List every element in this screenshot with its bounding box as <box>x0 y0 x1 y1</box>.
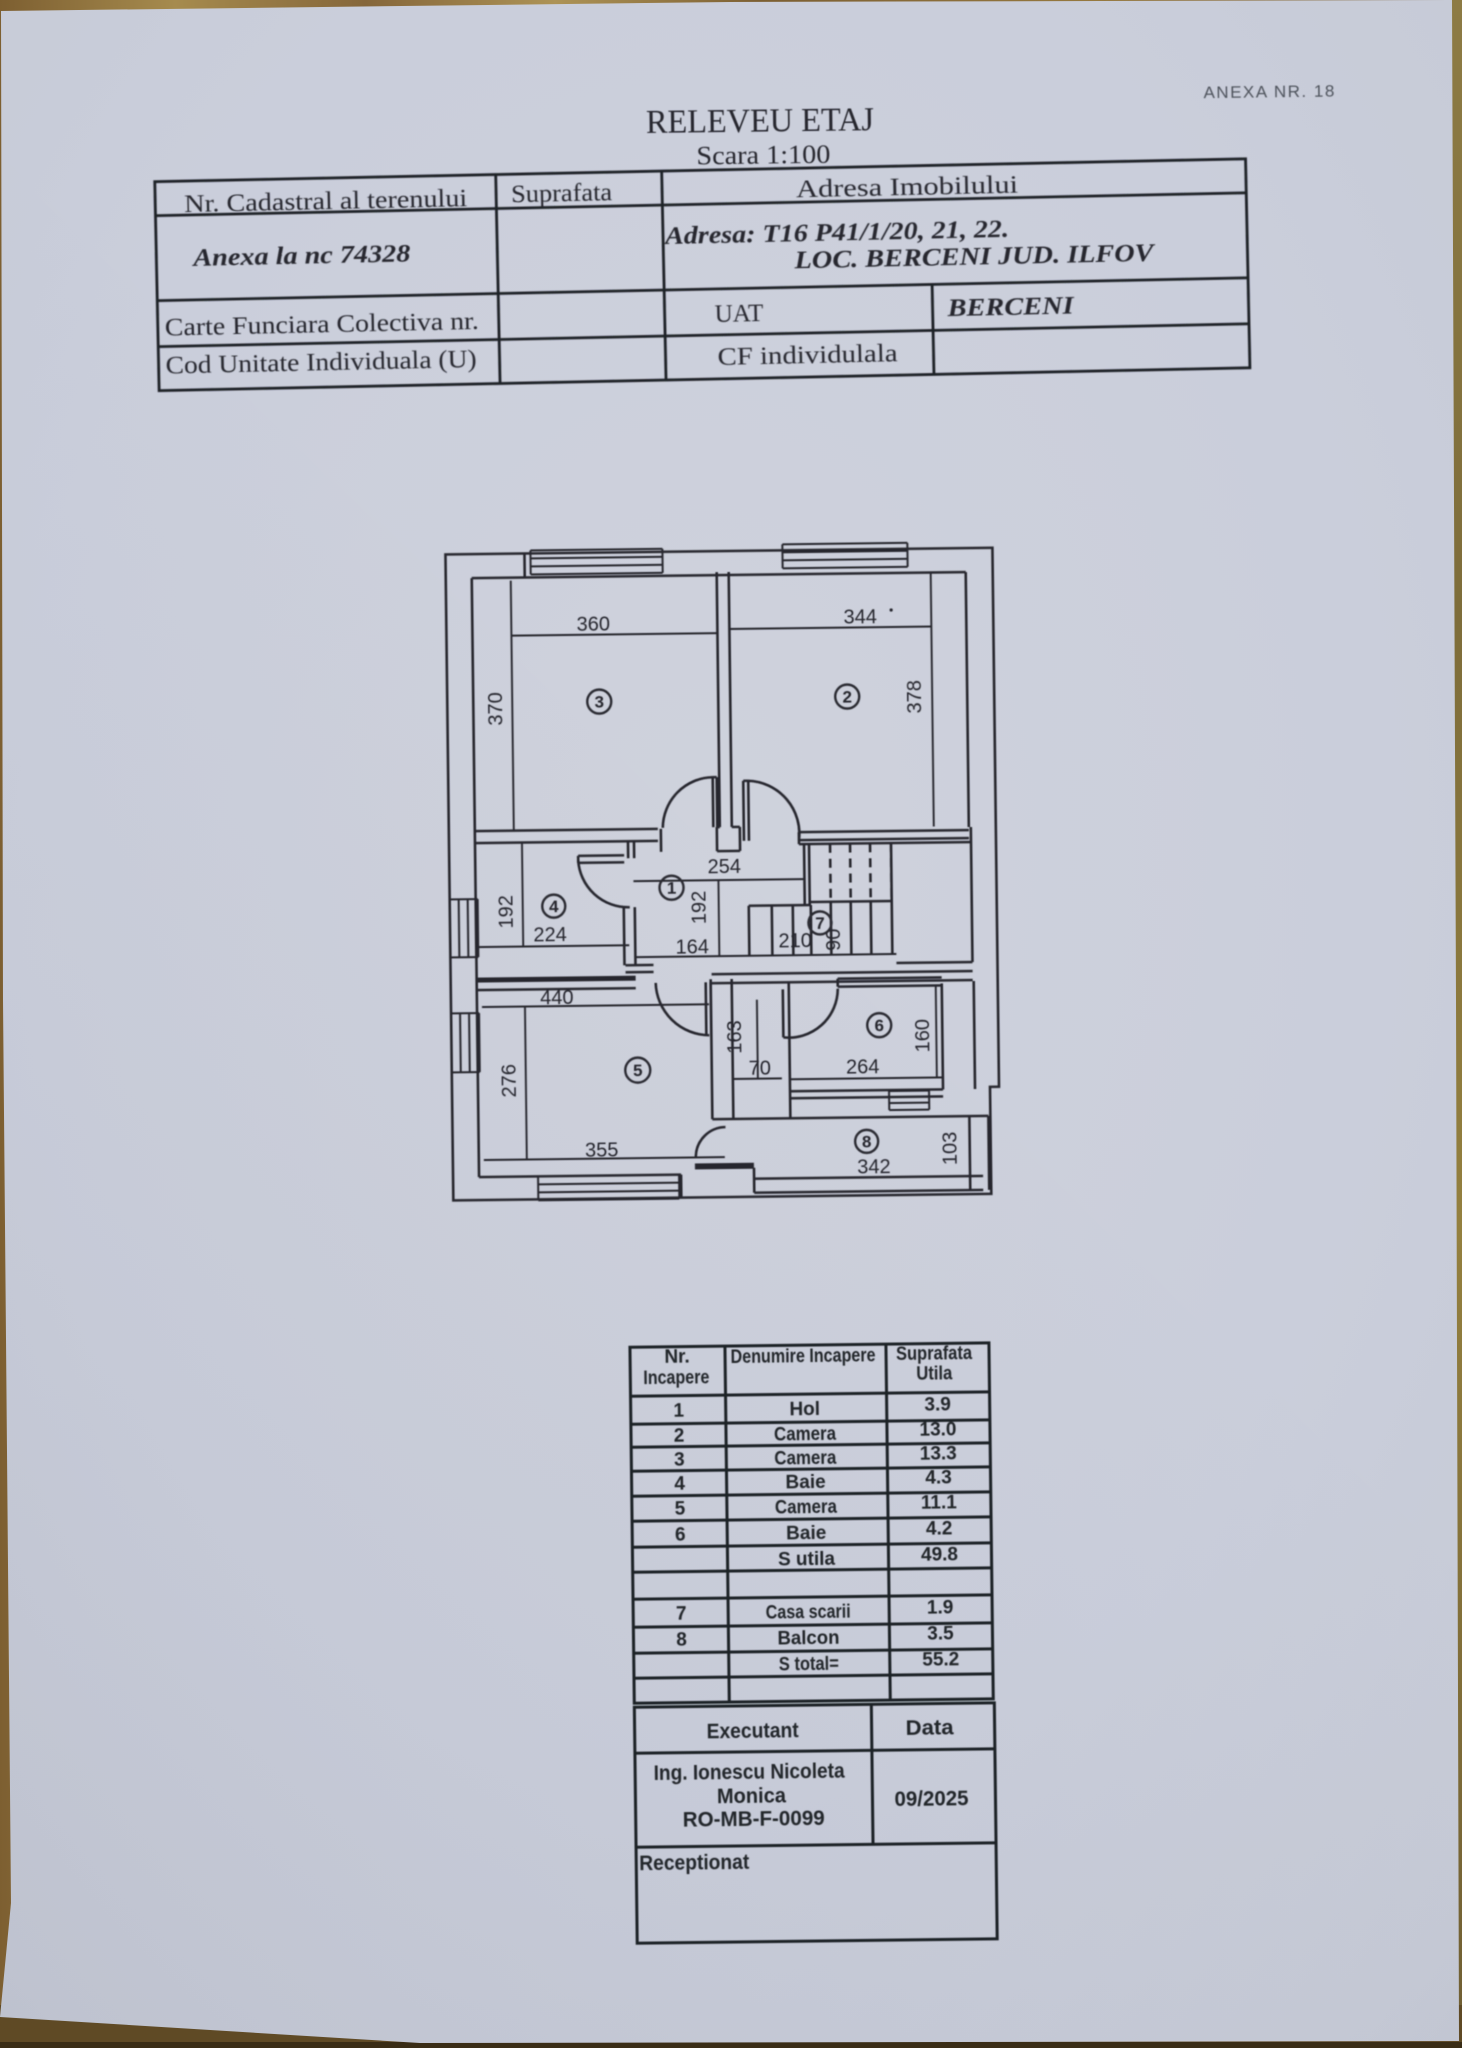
svg-text:09/2025: 09/2025 <box>894 1787 969 1811</box>
svg-text:Monica: Monica <box>717 1784 787 1808</box>
svg-text:CF individulala: CF individulala <box>717 340 898 371</box>
svg-text:3.9: 3.9 <box>924 1394 951 1415</box>
svg-text:Hol: Hol <box>789 1399 820 1420</box>
svg-text:Data: Data <box>905 1716 954 1740</box>
svg-text:Denumire Incapere: Denumire Incapere <box>730 1345 875 1368</box>
svg-text:2: 2 <box>842 687 852 706</box>
svg-text:13.0: 13.0 <box>919 1419 956 1440</box>
svg-text:360: 360 <box>576 613 610 635</box>
svg-text:Casa scarii: Casa scarii <box>766 1602 851 1624</box>
svg-text:160: 160 <box>912 1019 934 1053</box>
svg-text:4.2: 4.2 <box>926 1518 953 1539</box>
svg-text:192: 192 <box>496 895 518 929</box>
svg-text:Incapere: Incapere <box>643 1367 709 1389</box>
svg-text:Suprafata: Suprafata <box>896 1343 973 1365</box>
svg-text:8: 8 <box>676 1630 687 1651</box>
svg-text:55.2: 55.2 <box>922 1649 959 1670</box>
svg-text:7: 7 <box>676 1604 687 1625</box>
svg-text:Utila: Utila <box>916 1363 953 1384</box>
svg-text:264: 264 <box>846 1056 880 1078</box>
svg-text:224: 224 <box>533 924 567 946</box>
svg-text:90: 90 <box>823 928 845 951</box>
svg-text:5: 5 <box>675 1499 686 1520</box>
svg-text:13.3: 13.3 <box>920 1443 957 1464</box>
svg-text:Receptionat: Receptionat <box>639 1851 749 1875</box>
svg-text:342: 342 <box>857 1156 891 1178</box>
svg-text:3.5: 3.5 <box>927 1623 954 1644</box>
svg-text:Adresa Imobilului: Adresa Imobilului <box>796 172 1019 204</box>
svg-text:Baie: Baie <box>785 1472 825 1493</box>
svg-text:Scara 1:100: Scara 1:100 <box>696 140 830 171</box>
svg-text:BERCENI: BERCENI <box>946 292 1075 322</box>
svg-text:3: 3 <box>674 1450 685 1471</box>
svg-text:RO-MB-F-0099: RO-MB-F-0099 <box>683 1807 825 1832</box>
svg-text:6: 6 <box>675 1525 686 1546</box>
svg-text:440: 440 <box>540 987 574 1009</box>
svg-text:3: 3 <box>594 693 604 712</box>
svg-text:S total=: S total= <box>779 1654 839 1676</box>
svg-text:UAT: UAT <box>714 300 763 328</box>
svg-text:49.8: 49.8 <box>921 1544 958 1565</box>
svg-text:Suprafata: Suprafata <box>511 179 613 208</box>
svg-text:2: 2 <box>674 1426 685 1447</box>
svg-text:Executant: Executant <box>707 1719 799 1743</box>
svg-text:192: 192 <box>689 891 711 925</box>
svg-text:163: 163 <box>724 1020 746 1054</box>
svg-text:254: 254 <box>707 856 741 878</box>
svg-text:1: 1 <box>667 879 677 898</box>
svg-text:4.3: 4.3 <box>925 1467 952 1488</box>
svg-text:S utila: S utila <box>778 1549 836 1571</box>
svg-text:Baie: Baie <box>786 1523 826 1544</box>
svg-text:Camera: Camera <box>775 1497 838 1519</box>
svg-text:11.1: 11.1 <box>921 1492 958 1513</box>
svg-text:Camera: Camera <box>774 1424 837 1446</box>
svg-text:1.9: 1.9 <box>927 1597 954 1618</box>
svg-text:8: 8 <box>862 1132 872 1151</box>
svg-text:355: 355 <box>585 1139 619 1161</box>
svg-text:RELEVEU ETAJ: RELEVEU ETAJ <box>646 101 874 141</box>
svg-text:Balcon: Balcon <box>777 1628 839 1650</box>
svg-text:344: 344 <box>843 606 877 628</box>
svg-text:70: 70 <box>748 1058 771 1080</box>
svg-text:103: 103 <box>940 1132 962 1166</box>
svg-text:378: 378 <box>904 680 926 714</box>
svg-text:ANEXA NR. 18: ANEXA NR. 18 <box>1203 82 1336 103</box>
svg-text:4: 4 <box>674 1474 685 1495</box>
svg-text:164: 164 <box>675 936 709 958</box>
svg-text:Anexa la nc 74328: Anexa la nc 74328 <box>191 240 411 272</box>
svg-text:210: 210 <box>778 930 812 952</box>
svg-text:Camera: Camera <box>774 1448 837 1470</box>
svg-text:4: 4 <box>549 897 559 916</box>
svg-text:370: 370 <box>485 692 507 726</box>
svg-text:Nr.: Nr. <box>664 1347 690 1368</box>
svg-text:6: 6 <box>874 1016 884 1035</box>
svg-text:Ing. Ionescu Nicoleta: Ing. Ionescu Nicoleta <box>654 1760 846 1785</box>
svg-text:276: 276 <box>499 1064 521 1098</box>
svg-text:1: 1 <box>673 1401 684 1422</box>
svg-text:5: 5 <box>633 1061 643 1080</box>
